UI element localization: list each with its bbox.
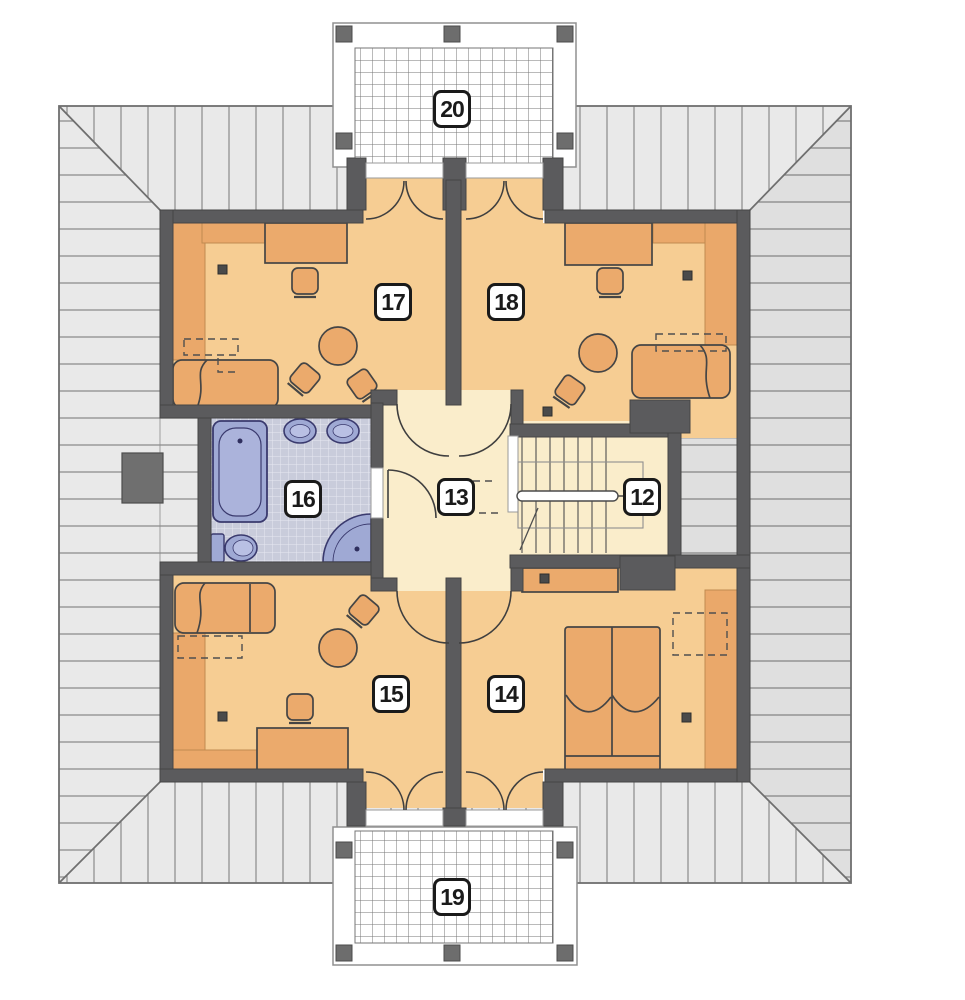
desk-chair — [287, 694, 313, 723]
room-14-floor-bay — [461, 770, 543, 808]
room-label-16: 16 — [284, 480, 322, 518]
shelf — [522, 568, 618, 592]
room-label-17: 17 — [374, 283, 412, 321]
stair-handrail — [517, 491, 618, 501]
room-label-14: 14 — [487, 675, 525, 713]
bed — [632, 345, 730, 398]
round-table — [319, 327, 357, 365]
chimney — [122, 453, 163, 503]
room-label-19: 19 — [433, 878, 471, 916]
double-bed — [565, 627, 660, 771]
sink — [284, 418, 316, 443]
desk — [257, 728, 348, 770]
room-label-12: 12 — [623, 478, 661, 516]
toilet — [211, 534, 257, 562]
desk — [565, 223, 652, 265]
floor-plan-page: 20 17 18 16 13 12 15 14 19 — [0, 0, 965, 1000]
room-15-floor-bay — [363, 770, 446, 808]
bathtub — [213, 421, 267, 522]
room-label-13: 13 — [437, 478, 475, 516]
desk — [265, 223, 347, 263]
sink — [327, 418, 359, 443]
room-label-15: 15 — [372, 675, 410, 713]
roof-notch-bathroom — [160, 418, 198, 562]
roof-face-right — [750, 106, 851, 883]
desk-chair — [292, 268, 318, 297]
round-table — [319, 629, 357, 667]
floor-plan-drawing — [0, 0, 965, 1000]
round-table — [579, 334, 617, 372]
bed — [175, 583, 275, 633]
desk-chair — [597, 268, 623, 297]
bed — [173, 360, 278, 408]
room-label-18: 18 — [487, 283, 525, 321]
room-label-20: 20 — [433, 90, 471, 128]
